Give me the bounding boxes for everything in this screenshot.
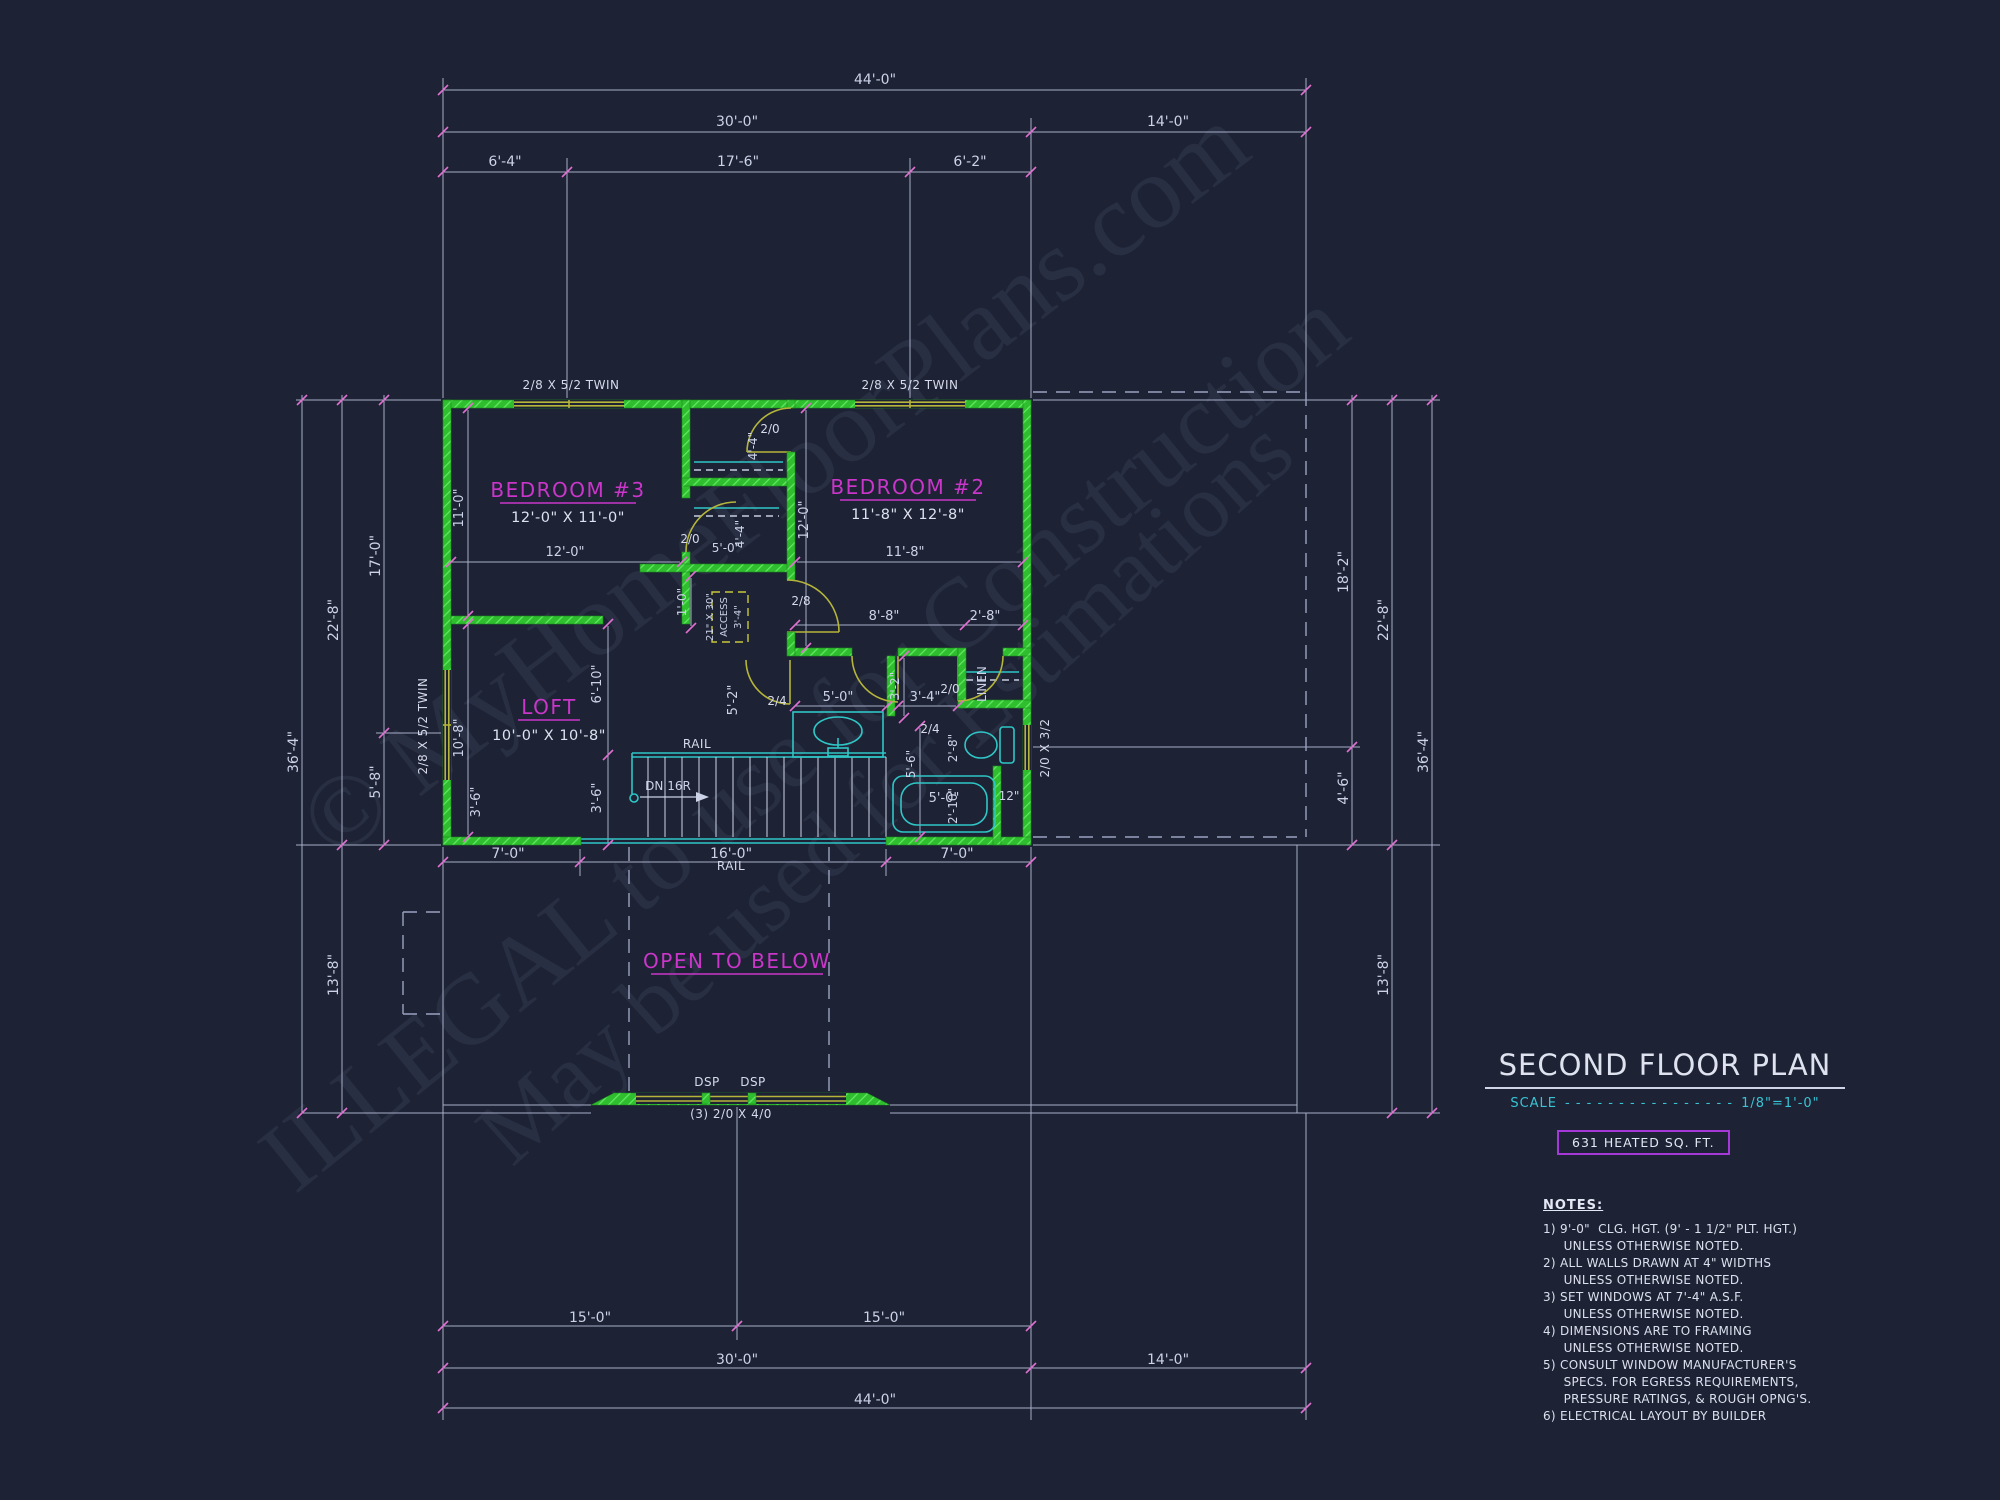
plan-label: 5'-0" <box>929 791 960 806</box>
wall-segment <box>886 837 1031 845</box>
dormer-mullion <box>748 1093 756 1104</box>
plan-label: 12" <box>999 789 1020 803</box>
note-line: UNLESS OTHERWISE NOTED. <box>1543 1306 1843 1323</box>
plan-label: 30'-0" <box>716 1352 758 1368</box>
plan-label: 14'-0" <box>1147 114 1189 130</box>
scale-line: SCALE - - - - - - - - - - - - - - - - 1/… <box>1485 1096 1845 1111</box>
drawing-title: SECOND FLOOR PLAN <box>1485 1048 1845 1089</box>
plan-label: RAIL <box>717 859 745 873</box>
note-line: UNLESS OTHERWISE NOTED. <box>1543 1340 1843 1357</box>
plan-label: 5'-0" <box>712 541 740 555</box>
room-label-bedroom2: BEDROOM #2 <box>830 475 985 499</box>
plan-label: 11'-0" <box>452 488 467 527</box>
plan-label: 21" X 30" <box>705 593 716 641</box>
note-line: 1) 9'-0" CLG. HGT. (9' - 1 1/2" PLT. HGT… <box>1543 1221 1843 1238</box>
plan-label: 13'-8" <box>326 954 342 996</box>
plan-label: 2/8 X 5/2 TWIN <box>523 378 620 392</box>
plan-label: (3) 2/0 X 4/0 <box>690 1107 772 1121</box>
wall-segment <box>1003 648 1031 656</box>
wall-segment <box>451 616 603 624</box>
plan-label: 7'-0" <box>491 846 524 862</box>
plan-label: 36'-4" <box>1416 731 1432 773</box>
plan-label: 3'-2" <box>888 672 902 700</box>
plan-label: 6'-2" <box>953 154 986 170</box>
plan-label: DSP <box>740 1075 766 1089</box>
plan-label: 4'-4" <box>746 432 760 460</box>
plan-label: 5'-0" <box>823 690 854 705</box>
plan-label: 17'-6" <box>717 154 759 170</box>
plan-label: 10'-8" <box>452 718 467 757</box>
plan-label: 2/8 X 5/2 TWIN <box>862 378 959 392</box>
note-line: SPECS. FOR EGRESS REQUIREMENTS, <box>1543 1374 1843 1391</box>
plan-label: 4'-6" <box>1336 771 1352 804</box>
plan-label: LINEN <box>975 666 989 702</box>
plan-label: DSP <box>694 1075 720 1089</box>
blueprint-canvas: © MyHomeFloorPlans.com ILLEGAL to use fo… <box>0 0 2000 1500</box>
note-line: 4) DIMENSIONS ARE TO FRAMING <box>1543 1323 1843 1340</box>
plan-label: 12'-0" <box>797 500 812 539</box>
plan-label: 6'-10" <box>590 664 605 703</box>
plan-label: 30'-0" <box>716 114 758 130</box>
plan-label: RAIL <box>683 737 711 751</box>
room-size-bedroom3: 12'-0" X 11'-0" <box>511 510 625 526</box>
plan-label: DN 16R <box>645 779 691 793</box>
plan-label: 3'-4" <box>733 605 744 629</box>
plan-label: 11'-8" <box>885 545 924 560</box>
plan-label: 2'-8" <box>946 734 960 762</box>
plan-label: 14'-0" <box>1147 1352 1189 1368</box>
scale-dots: - - - - - - - - - - - - - - - - <box>1565 1096 1733 1111</box>
note-line: PRESSURE RATINGS, & ROUGH OPNG'S. <box>1543 1391 1843 1408</box>
plan-label: 36'-4" <box>286 731 302 773</box>
plan-label: 12'-0" <box>545 545 584 560</box>
note-line: 6) ELECTRICAL LAYOUT BY BUILDER <box>1543 1408 1843 1425</box>
note-line: 5) CONSULT WINDOW MANUFACTURER'S <box>1543 1357 1843 1374</box>
dormer-mullion <box>702 1093 710 1104</box>
plan-label: 2/0 X 3/2 <box>1038 719 1052 778</box>
title-block: SECOND FLOOR PLAN SCALE - - - - - - - - … <box>1485 1048 1845 1111</box>
plan-label: 15'-0" <box>863 1310 905 1326</box>
note-line: UNLESS OTHERWISE NOTED. <box>1543 1272 1843 1289</box>
dormer-window-opening <box>636 1093 846 1104</box>
plan-label: 2/4 <box>767 694 786 708</box>
plan-label: 2'-8" <box>970 609 1001 624</box>
plan-label: 17'-0" <box>368 535 384 577</box>
wall-segment <box>787 452 795 580</box>
room-label-loft: LOFT <box>521 695 577 719</box>
room-size-loft: 10'-0" X 10'-8" <box>492 728 606 744</box>
note-line: UNLESS OTHERWISE NOTED. <box>1543 1238 1843 1255</box>
room-size-bedroom2: 11'-8" X 12'-8" <box>851 507 965 523</box>
wall-segment <box>1023 400 1031 845</box>
plan-label: 2/4 <box>920 722 939 736</box>
plan-label: 1'-0" <box>675 588 689 616</box>
plan-label: 8'-8" <box>869 609 900 624</box>
note-line: 3) SET WINDOWS AT 7'-4" A.S.F. <box>1543 1289 1843 1306</box>
plan-label: 44'-0" <box>854 1392 896 1408</box>
front-dormer-wall <box>591 1093 890 1105</box>
plan-label: 3'-6" <box>590 783 605 814</box>
plan-label: 15'-0" <box>569 1310 611 1326</box>
plan-label: 5'-8" <box>368 765 384 798</box>
note-line: 2) ALL WALLS DRAWN AT 4" WIDTHS <box>1543 1255 1843 1272</box>
plan-label: 2/8 <box>791 594 810 608</box>
wall-segment <box>787 400 795 408</box>
wall-segment <box>958 648 966 708</box>
notes-section: NOTES: 1) 9'-0" CLG. HGT. (9' - 1 1/2" P… <box>1543 1198 1843 1425</box>
stair-newel-icon <box>630 794 638 802</box>
window-opening <box>1023 725 1031 770</box>
scale-value: 1/8"=1'-0" <box>1741 1096 1820 1111</box>
plan-label: 6'-4" <box>488 154 521 170</box>
plan-label: ACCESS <box>719 597 730 637</box>
heated-area-badge: 631 HEATED SQ. FT. <box>1557 1130 1730 1155</box>
plan-label: 44'-0" <box>854 72 896 88</box>
room-label-open-to-below: OPEN TO BELOW <box>643 949 831 973</box>
scale-label: SCALE <box>1510 1096 1557 1111</box>
watermark: © MyHomeFloorPlans.com ILLEGAL to use fo… <box>239 83 1368 1212</box>
plan-label: 13'-8" <box>1376 954 1392 996</box>
plan-label: 2/0 <box>760 422 779 436</box>
plan-label: 3'-6" <box>469 787 484 818</box>
wall-segment <box>795 648 852 656</box>
plan-label: 2/0 <box>680 532 699 546</box>
plan-label: 22'-8" <box>1376 599 1392 641</box>
wall-segment <box>682 478 795 486</box>
plan-label: 2/8 X 5/2 TWIN <box>416 678 430 775</box>
notes-heading: NOTES: <box>1543 1198 1843 1213</box>
plan-label: 7'-0" <box>940 846 973 862</box>
plan-label: 18'-2" <box>1336 551 1352 593</box>
wall-segment <box>640 564 795 572</box>
plan-label: 3'-4" <box>910 690 941 705</box>
wall-segment <box>787 632 795 656</box>
plan-label: 22'-8" <box>326 599 342 641</box>
plan-label: 5'-2" <box>726 685 741 716</box>
room-label-bedroom3: BEDROOM #3 <box>490 478 645 502</box>
notes-list: 1) 9'-0" CLG. HGT. (9' - 1 1/2" PLT. HGT… <box>1543 1221 1843 1425</box>
plan-label: 5'-6" <box>904 750 918 778</box>
plan-label: 2/0 <box>940 682 959 696</box>
wall-segment <box>958 700 1031 708</box>
